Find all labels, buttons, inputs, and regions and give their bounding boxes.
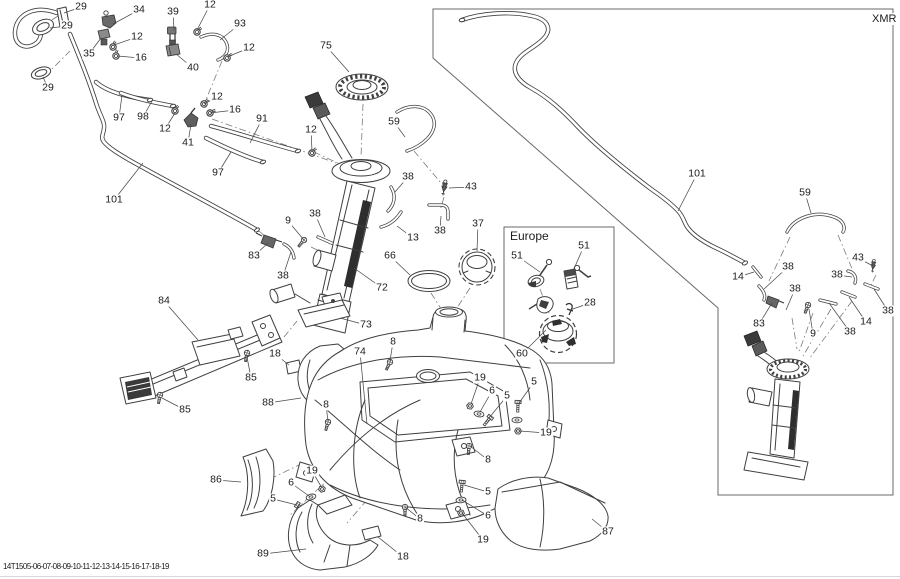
callout-leader-line	[354, 268, 382, 288]
callout-leader-line	[250, 119, 262, 143]
callout-leader-line	[440, 216, 441, 231]
callout-leader-line	[164, 301, 198, 340]
callout-leader-line	[470, 446, 488, 460]
callout-leader-line	[288, 221, 304, 240]
callout-leader-line	[394, 122, 405, 137]
callout-leader-lines	[0, 0, 900, 579]
callout-leader-line	[519, 382, 534, 403]
callout-leader-line	[197, 5, 210, 30]
callout-leader-line	[738, 272, 754, 277]
callout-leader-line	[218, 152, 231, 173]
callout-leader-line	[311, 130, 312, 151]
callout-leader-line	[405, 507, 420, 519]
callout-leader-line	[837, 275, 852, 277]
callout-leader-line	[216, 480, 241, 482]
callout-leader-line	[119, 95, 122, 118]
callout-leader-line	[326, 405, 328, 421]
callout-leader-line	[50, 26, 67, 28]
callout-leader-line	[326, 46, 349, 72]
callout-leader-line	[275, 354, 289, 365]
callout-leader-line	[283, 252, 291, 276]
callout-leader-line	[874, 289, 888, 311]
callout-leader-line	[263, 549, 306, 554]
callout-leader-line	[462, 513, 483, 540]
callout-leader-line	[805, 193, 811, 213]
callout-leader-line	[390, 256, 410, 275]
callout-leader-line	[858, 258, 873, 266]
callout-leader-line	[520, 431, 546, 433]
callout-leader-line	[570, 303, 590, 310]
callout-leader-line	[227, 48, 249, 57]
callout-leader-line	[592, 519, 608, 532]
parts-diagram-page: 2929343912931235164012299798124112169197…	[0, 0, 900, 579]
xmr-variant-label: XMR	[871, 13, 897, 25]
figure-part-code: 14T1505-06-07-08-09-10-11-12-13-14-15-16…	[3, 562, 169, 571]
callout-leader-line	[254, 243, 268, 256]
callout-leader-line	[517, 256, 540, 272]
callout-leader-line	[89, 38, 101, 54]
callout-leader-line	[273, 499, 297, 505]
callout-leader-line	[829, 303, 850, 332]
callout-leader-line	[176, 54, 193, 68]
callout-leader-line	[315, 214, 325, 237]
europe-variant-label: Europe	[509, 229, 550, 243]
callout-leader-line	[340, 318, 366, 325]
callout-leader-line	[786, 289, 795, 310]
callout-leader-line	[395, 177, 408, 192]
callout-leader-line	[268, 398, 301, 403]
callout-leader-line	[397, 226, 413, 238]
callout-leader-line	[678, 174, 697, 211]
callout-leader-line	[173, 12, 174, 30]
callout-leader-line	[143, 101, 152, 117]
callout-leader-line	[764, 267, 788, 289]
callout-leader-line	[480, 391, 492, 412]
callout-leader-line	[312, 471, 322, 488]
callout-leader-line	[204, 97, 217, 104]
callout-leader-line	[809, 309, 813, 334]
callout-leader-line	[188, 124, 191, 143]
callout-leader-line	[210, 110, 235, 113]
callout-leader-line	[113, 10, 139, 24]
callout-leader-line	[114, 163, 143, 200]
callout-leader-line	[247, 357, 251, 378]
callout-leader-line	[117, 56, 141, 58]
callout-leader-line	[291, 483, 309, 496]
callout-leader-line	[471, 378, 480, 404]
callout-leader-line	[489, 396, 507, 418]
callout-leader-line	[849, 297, 866, 322]
callout-leader-line	[114, 37, 137, 45]
callout-leader-line	[64, 7, 81, 13]
callout-leader-line	[378, 537, 403, 557]
callout-leader-line	[220, 24, 240, 40]
callout-leader-line	[43, 77, 48, 88]
callout-leader-line	[759, 303, 772, 324]
callout-leader-line	[522, 330, 546, 354]
callout-leader-line	[464, 485, 488, 492]
callout-leader-line	[449, 187, 471, 188]
callout-leader-line	[162, 398, 185, 410]
callout-leader-line	[390, 342, 393, 361]
callout-leader-line	[165, 113, 175, 129]
callout-leader-line	[573, 246, 584, 271]
callout-leader-line	[360, 352, 367, 424]
callout-leader-line	[462, 500, 488, 516]
callout-leader-line	[477, 224, 478, 251]
